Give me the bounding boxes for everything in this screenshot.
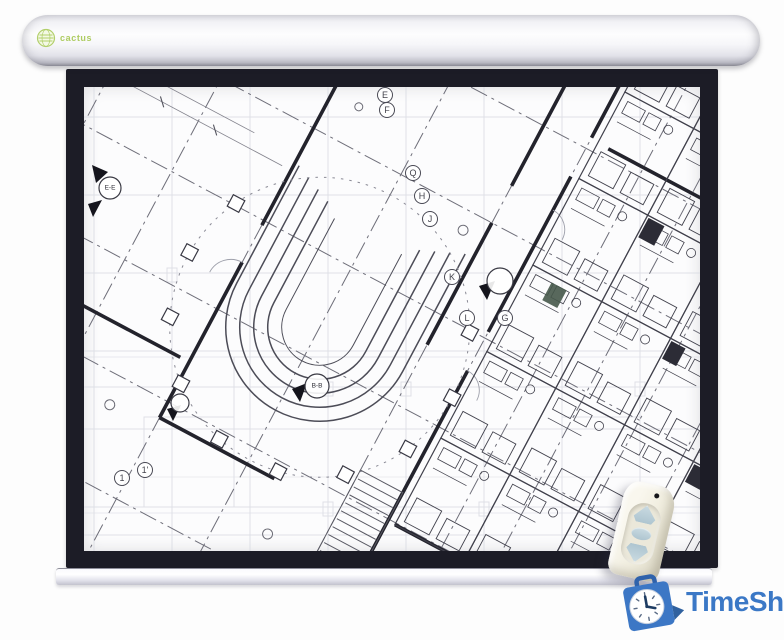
axis-bubble: Q [406,166,421,181]
svg-text:J: J [428,214,433,224]
axis-bubble: 1' [138,463,153,478]
timeshop-clock-bag-icon [618,571,684,637]
remote-stop-button [630,526,652,542]
svg-text:G: G [501,313,508,323]
axis-bubble: K [445,270,460,285]
cactus-globe-icon [36,28,56,48]
svg-text:K: K [449,272,455,282]
section-marker: E-E [88,165,121,217]
watermark-text: TimeShop [686,586,784,618]
svg-text:L: L [464,313,469,323]
svg-text:Q: Q [409,168,416,178]
product-photo: cactus [0,0,784,640]
remote-led-indicator [654,493,660,499]
section-marker: B-B [292,374,329,402]
brand-logo: cactus [36,28,92,48]
blueprint-main-layer [84,87,700,551]
svg-text:H: H [419,191,426,201]
axis-bubble: G [498,311,513,326]
remote-down-button [623,542,650,565]
remote-up-button [632,503,659,526]
shaft-fill [542,282,566,308]
svg-text:F: F [384,105,390,115]
blueprint-drawing: E F Q H J K L G 1 1' [84,87,700,551]
svg-text:E: E [382,90,388,100]
axis-bubble: L [460,311,475,326]
axis-bubble: J [423,212,438,227]
axis-bubble: H [415,189,430,204]
axis-bubble: E [378,88,393,103]
axis-bubble: F [380,103,395,118]
svg-text:B-B: B-B [312,383,323,390]
blueprint-overlay: E F Q H J K L G 1 1' [88,88,567,486]
screen-casing: cactus [22,15,760,66]
brand-logo-text: cactus [60,33,92,43]
svg-text:1': 1' [142,465,149,475]
screen-frame: E F Q H J K L G 1 1' [66,69,718,568]
remote-button-panel [618,500,664,568]
svg-text:1: 1 [119,473,124,483]
svg-text:E-E: E-E [105,185,117,192]
stairs [316,470,403,551]
watermark: TimeShop [618,571,784,637]
screen-surface: E F Q H J K L G 1 1' [84,87,700,551]
axis-bubble: 1 [115,471,130,486]
